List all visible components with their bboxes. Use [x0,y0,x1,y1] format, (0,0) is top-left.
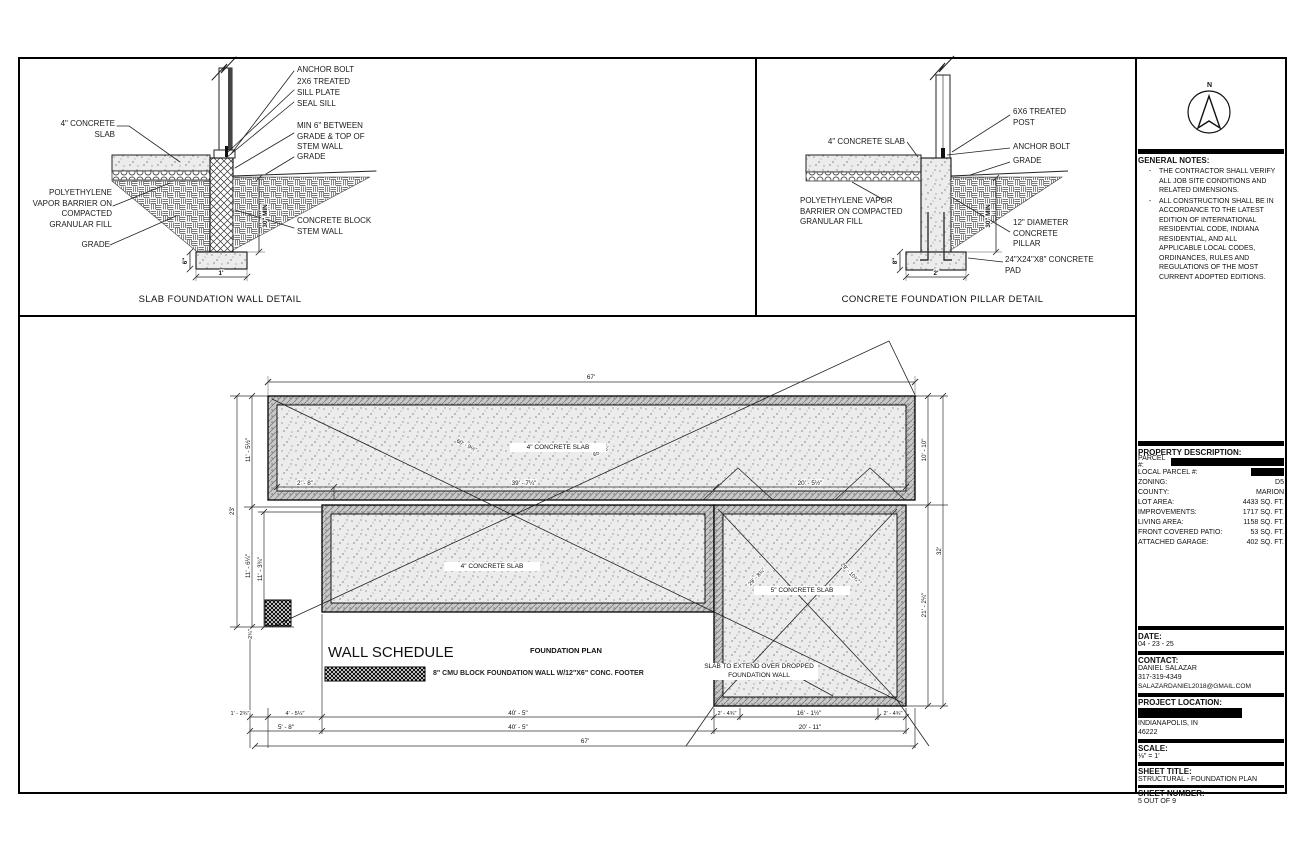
sheet-border [18,57,1287,794]
property-row: LIVING AREA:1158 SQ. FT. [1138,517,1284,527]
d1-label-anchor-bolt: ANCHOR BOLT [297,65,397,76]
d2-label-concrete-slab: 4" CONCRETE SLAB [805,137,905,148]
wall-schedule-title: WALL SCHEDULE [328,644,454,661]
property-label: COUNTY: [1138,489,1169,496]
sheet-number-label: SHEET NUMBER: [1138,789,1205,798]
d1-label-concrete-slab: 4" CONCRETE SLAB [42,119,115,140]
d1-title: SLAB FOUNDATION WALL DETAIL [100,294,340,305]
location-city: INDIANAPOLIS, IN [1138,720,1198,727]
location-divider-bar [1138,693,1284,697]
contact-divider-bar [1138,651,1284,655]
contact-email: SALAZARDANIEL2018@GMAIL.COM [1138,683,1251,690]
plan-dropped-note: SLAB TO EXTEND OVER DROPPED FOUNDATION W… [700,663,818,680]
date-value: 04 - 23 - 25 [1138,641,1174,648]
property-label: ZONING: [1138,479,1167,486]
d2-label-post: 6X6 TREATED POST [1013,107,1085,128]
location-title: PROJECT LOCATION: [1138,698,1222,707]
property-row: IMPROVEMENTS:1717 SQ. FT. [1138,507,1284,517]
property-label: FRONT COVERED PATIO: [1138,529,1222,536]
plan-slab-mid-label: 4" CONCRETE SLAB [444,562,540,571]
property-row: PARCEL #: [1138,457,1284,467]
redacted-address [1138,708,1242,718]
property-divider-bar [1138,441,1284,446]
property-row: FRONT COVERED PATIO:53 SQ. FT. [1138,527,1284,537]
contact-title: CONTACT: [1138,656,1178,665]
contact-phone: 317-319-4349 [1138,674,1182,681]
d1-label-stem-wall: CONCRETE BLOCK STEM WALL [297,216,375,237]
property-row: LOCAL PARCEL #: [1138,467,1284,477]
redacted-value [1251,468,1284,476]
plan-slab-right-label: 5" CONCRETE SLAB [754,586,850,595]
contact-name: DANIEL SALAZAR [1138,665,1197,672]
scale-divider-bar [1138,739,1284,743]
property-value: 4433 SQ. FT. [1243,499,1284,506]
d1-label-vapor-barrier: POLYETHYLENE VAPOR BARRIER ON COMPACTED … [28,188,112,230]
d2-label-pad: 24"X24"X8" CONCRETE PAD [1005,255,1095,276]
general-notes-title: GENERAL NOTES: [1138,156,1209,165]
d1-label-grade-left: GRADE [70,240,110,251]
sheet-number-value: 5 OUT OF 9 [1138,798,1176,805]
d2-label-vapor-barrier: POLYETHYLENE VAPOR BARRIER ON COMPACTED … [800,196,904,228]
d2-label-grade: GRADE [1013,156,1073,167]
property-value: 402 SQ. FT. [1247,539,1284,546]
property-value: 1717 SQ. FT. [1243,509,1284,516]
sidebar-divider [1135,57,1137,792]
detail-divider [755,57,757,315]
property-label: LOT AREA: [1138,499,1174,506]
property-row: ATTACHED GARAGE:402 SQ. FT. [1138,537,1284,547]
d1-label-min6: MIN 6" BETWEEN GRADE & TOP OF STEM WALL [297,121,389,153]
general-notes-list: - THE CONTRACTOR SHALL VERIFY ALL JOB SI… [1141,167,1284,283]
scale-title: SCALE: [1138,744,1168,753]
drawing-sheet: 30" MIN 6" 1' [0,0,1305,844]
sheet-title-label: SHEET TITLE: [1138,767,1192,776]
bullet-dash: - [1141,197,1159,207]
property-row: LOT AREA:4433 SQ. FT. [1138,497,1284,507]
d1-label-seal-sill: SEAL SILL [297,99,387,110]
d2-label-anchor-bolt: ANCHOR BOLT [1013,142,1103,153]
d2-title: CONCRETE FOUNDATION PILLAR DETAIL [790,294,1095,305]
property-value: MARION [1256,489,1284,496]
plan-caption: FOUNDATION PLAN [530,646,602,655]
plan-divider [18,315,1137,317]
plan-slab-top-label: 4" CONCRETE SLAB [510,443,606,452]
property-value: D5 [1275,479,1284,486]
property-table: PARCEL #: LOCAL PARCEL #: ZONING:D5 COUN… [1138,457,1284,547]
property-label: IMPROVEMENTS: [1138,509,1197,516]
property-label: PARCEL #: [1138,455,1171,469]
location-zip: 46222 [1138,729,1157,736]
note-item: - ALL CONSTRUCTION SHALL BE IN ACCORDANC… [1141,197,1284,283]
d1-label-grade-right: GRADE [297,152,357,163]
note-text: THE CONTRACTOR SHALL VERIFY ALL JOB SITE… [1159,167,1281,196]
note-item: - THE CONTRACTOR SHALL VERIFY ALL JOB SI… [1141,167,1284,196]
date-divider-bar [1138,626,1284,630]
sheet-title-value: STRUCTURAL - FOUNDATION PLAN [1138,776,1257,783]
property-row: ZONING:D5 [1138,477,1284,487]
property-value: 53 SQ. FT. [1251,529,1284,536]
property-label: LOCAL PARCEL #: [1138,469,1198,476]
property-row: COUNTY:MARION [1138,487,1284,497]
north-label: N [1205,82,1214,89]
sheet-title-divider-bar [1138,762,1284,766]
property-label: ATTACHED GARAGE: [1138,539,1209,546]
sheet-number-divider-bar [1138,785,1284,788]
property-value: 1158 SQ. FT. [1243,519,1284,526]
redacted-value [1171,458,1284,466]
property-label: LIVING AREA: [1138,519,1184,526]
d2-label-pillar: 12" DIAMETER CONCRETE PILLAR [1013,218,1087,250]
scale-value: ⅛" = 1' [1138,753,1160,760]
wall-schedule-item: 8" CMU BLOCK FOUNDATION WALL W/12"X6" CO… [433,670,644,677]
bullet-dash: - [1141,167,1159,177]
date-title: DATE: [1138,632,1162,641]
d1-label-sill-plate: 2X6 TREATED SILL PLATE [297,77,361,98]
note-text: ALL CONSTRUCTION SHALL BE IN ACCORDANCE … [1159,197,1281,283]
notes-divider-bar [1138,149,1284,154]
